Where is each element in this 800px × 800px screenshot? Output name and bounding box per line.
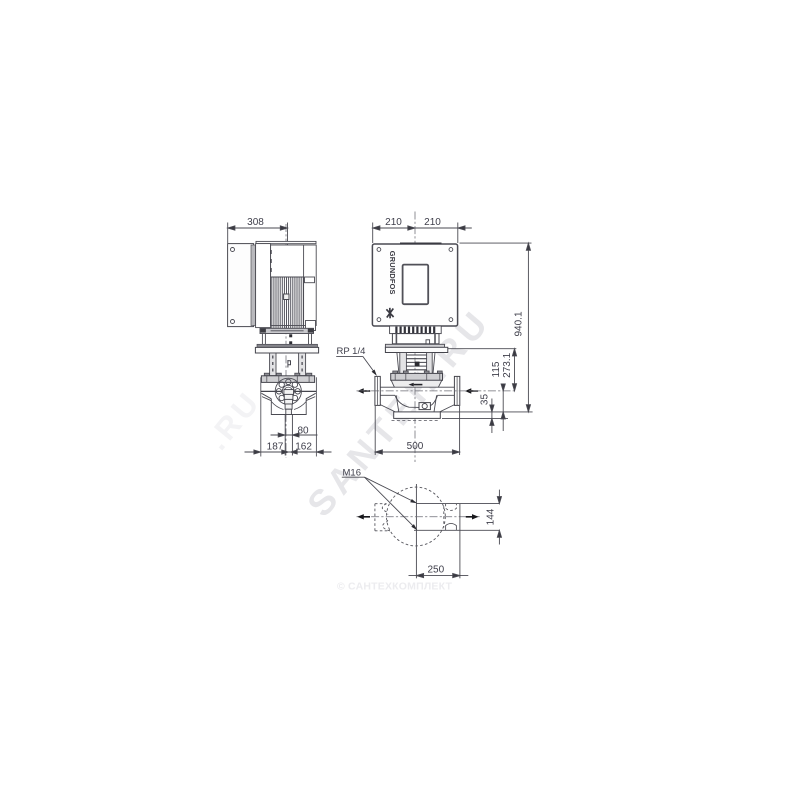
- svg-text:GRUNDFOS: GRUNDFOS: [388, 251, 397, 295]
- svg-text:144: 144: [485, 508, 496, 525]
- svg-text:500: 500: [407, 441, 424, 452]
- svg-text:35: 35: [480, 394, 491, 406]
- svg-text:210: 210: [424, 217, 441, 228]
- svg-text:250: 250: [427, 564, 444, 575]
- svg-text:210: 210: [385, 217, 402, 228]
- svg-text:115: 115: [491, 361, 502, 377]
- svg-text:162: 162: [295, 442, 312, 453]
- svg-text:273.1: 273.1: [502, 352, 513, 377]
- svg-text:187: 187: [267, 442, 284, 453]
- svg-text:M16: M16: [343, 467, 361, 478]
- svg-text:308: 308: [247, 217, 264, 228]
- svg-text:© САНТЕХКОМПЛЕКТ: © САНТЕХКОМПЛЕКТ: [337, 581, 452, 593]
- svg-text:RP 1/4: RP 1/4: [337, 346, 366, 357]
- svg-text:940.1: 940.1: [513, 311, 524, 336]
